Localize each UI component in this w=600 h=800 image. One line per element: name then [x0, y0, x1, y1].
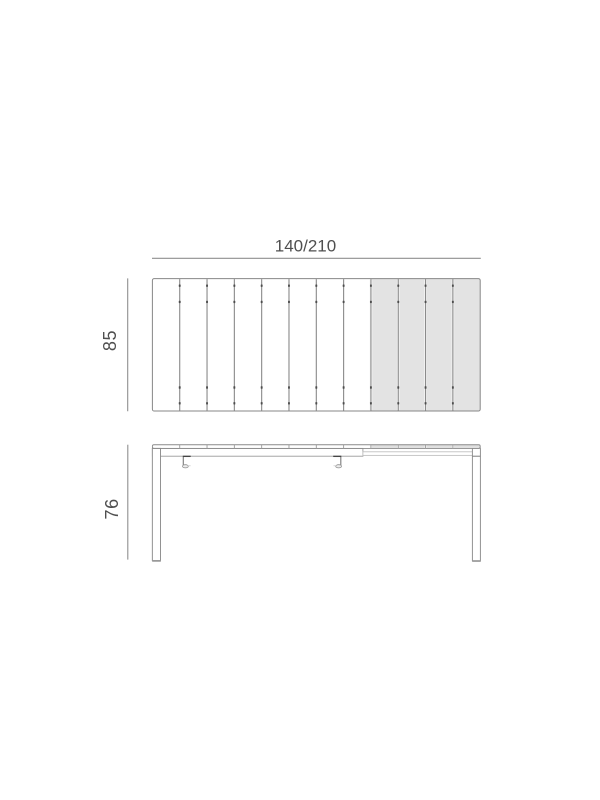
- svg-text:85: 85: [100, 330, 120, 351]
- svg-text:140/210: 140/210: [275, 237, 336, 256]
- svg-text:76: 76: [102, 498, 122, 519]
